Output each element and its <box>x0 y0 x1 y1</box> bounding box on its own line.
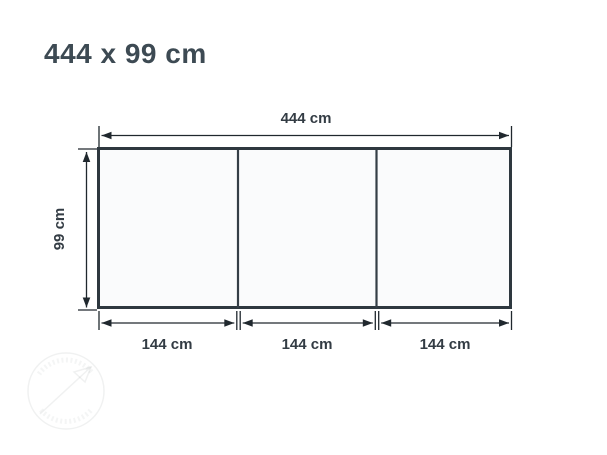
watermark-text-arc-bottom <box>41 410 91 421</box>
watermark-diagonal-line <box>40 367 91 414</box>
panel-dimension-diagram: 444 cm 99 cm 144 cm 144 cm 144 cm <box>0 0 607 455</box>
watermark-stamp <box>28 353 104 429</box>
panel-outline <box>99 149 511 308</box>
left-dimension-label: 99 cm <box>51 208 68 251</box>
left-height-dimension: 99 cm <box>51 149 97 310</box>
bottom-dimension-label-3: 144 cm <box>420 336 471 353</box>
top-width-dimension: 444 cm <box>99 110 512 147</box>
bottom-panel-dimensions: 144 cm 144 cm 144 cm <box>99 311 512 353</box>
bottom-dimension-label-1: 144 cm <box>142 336 193 353</box>
top-dimension-label: 444 cm <box>281 110 332 127</box>
bottom-dimension-label-2: 144 cm <box>282 336 333 353</box>
dimension-diagram-page: 444 x 99 cm 444 cm <box>0 0 607 455</box>
